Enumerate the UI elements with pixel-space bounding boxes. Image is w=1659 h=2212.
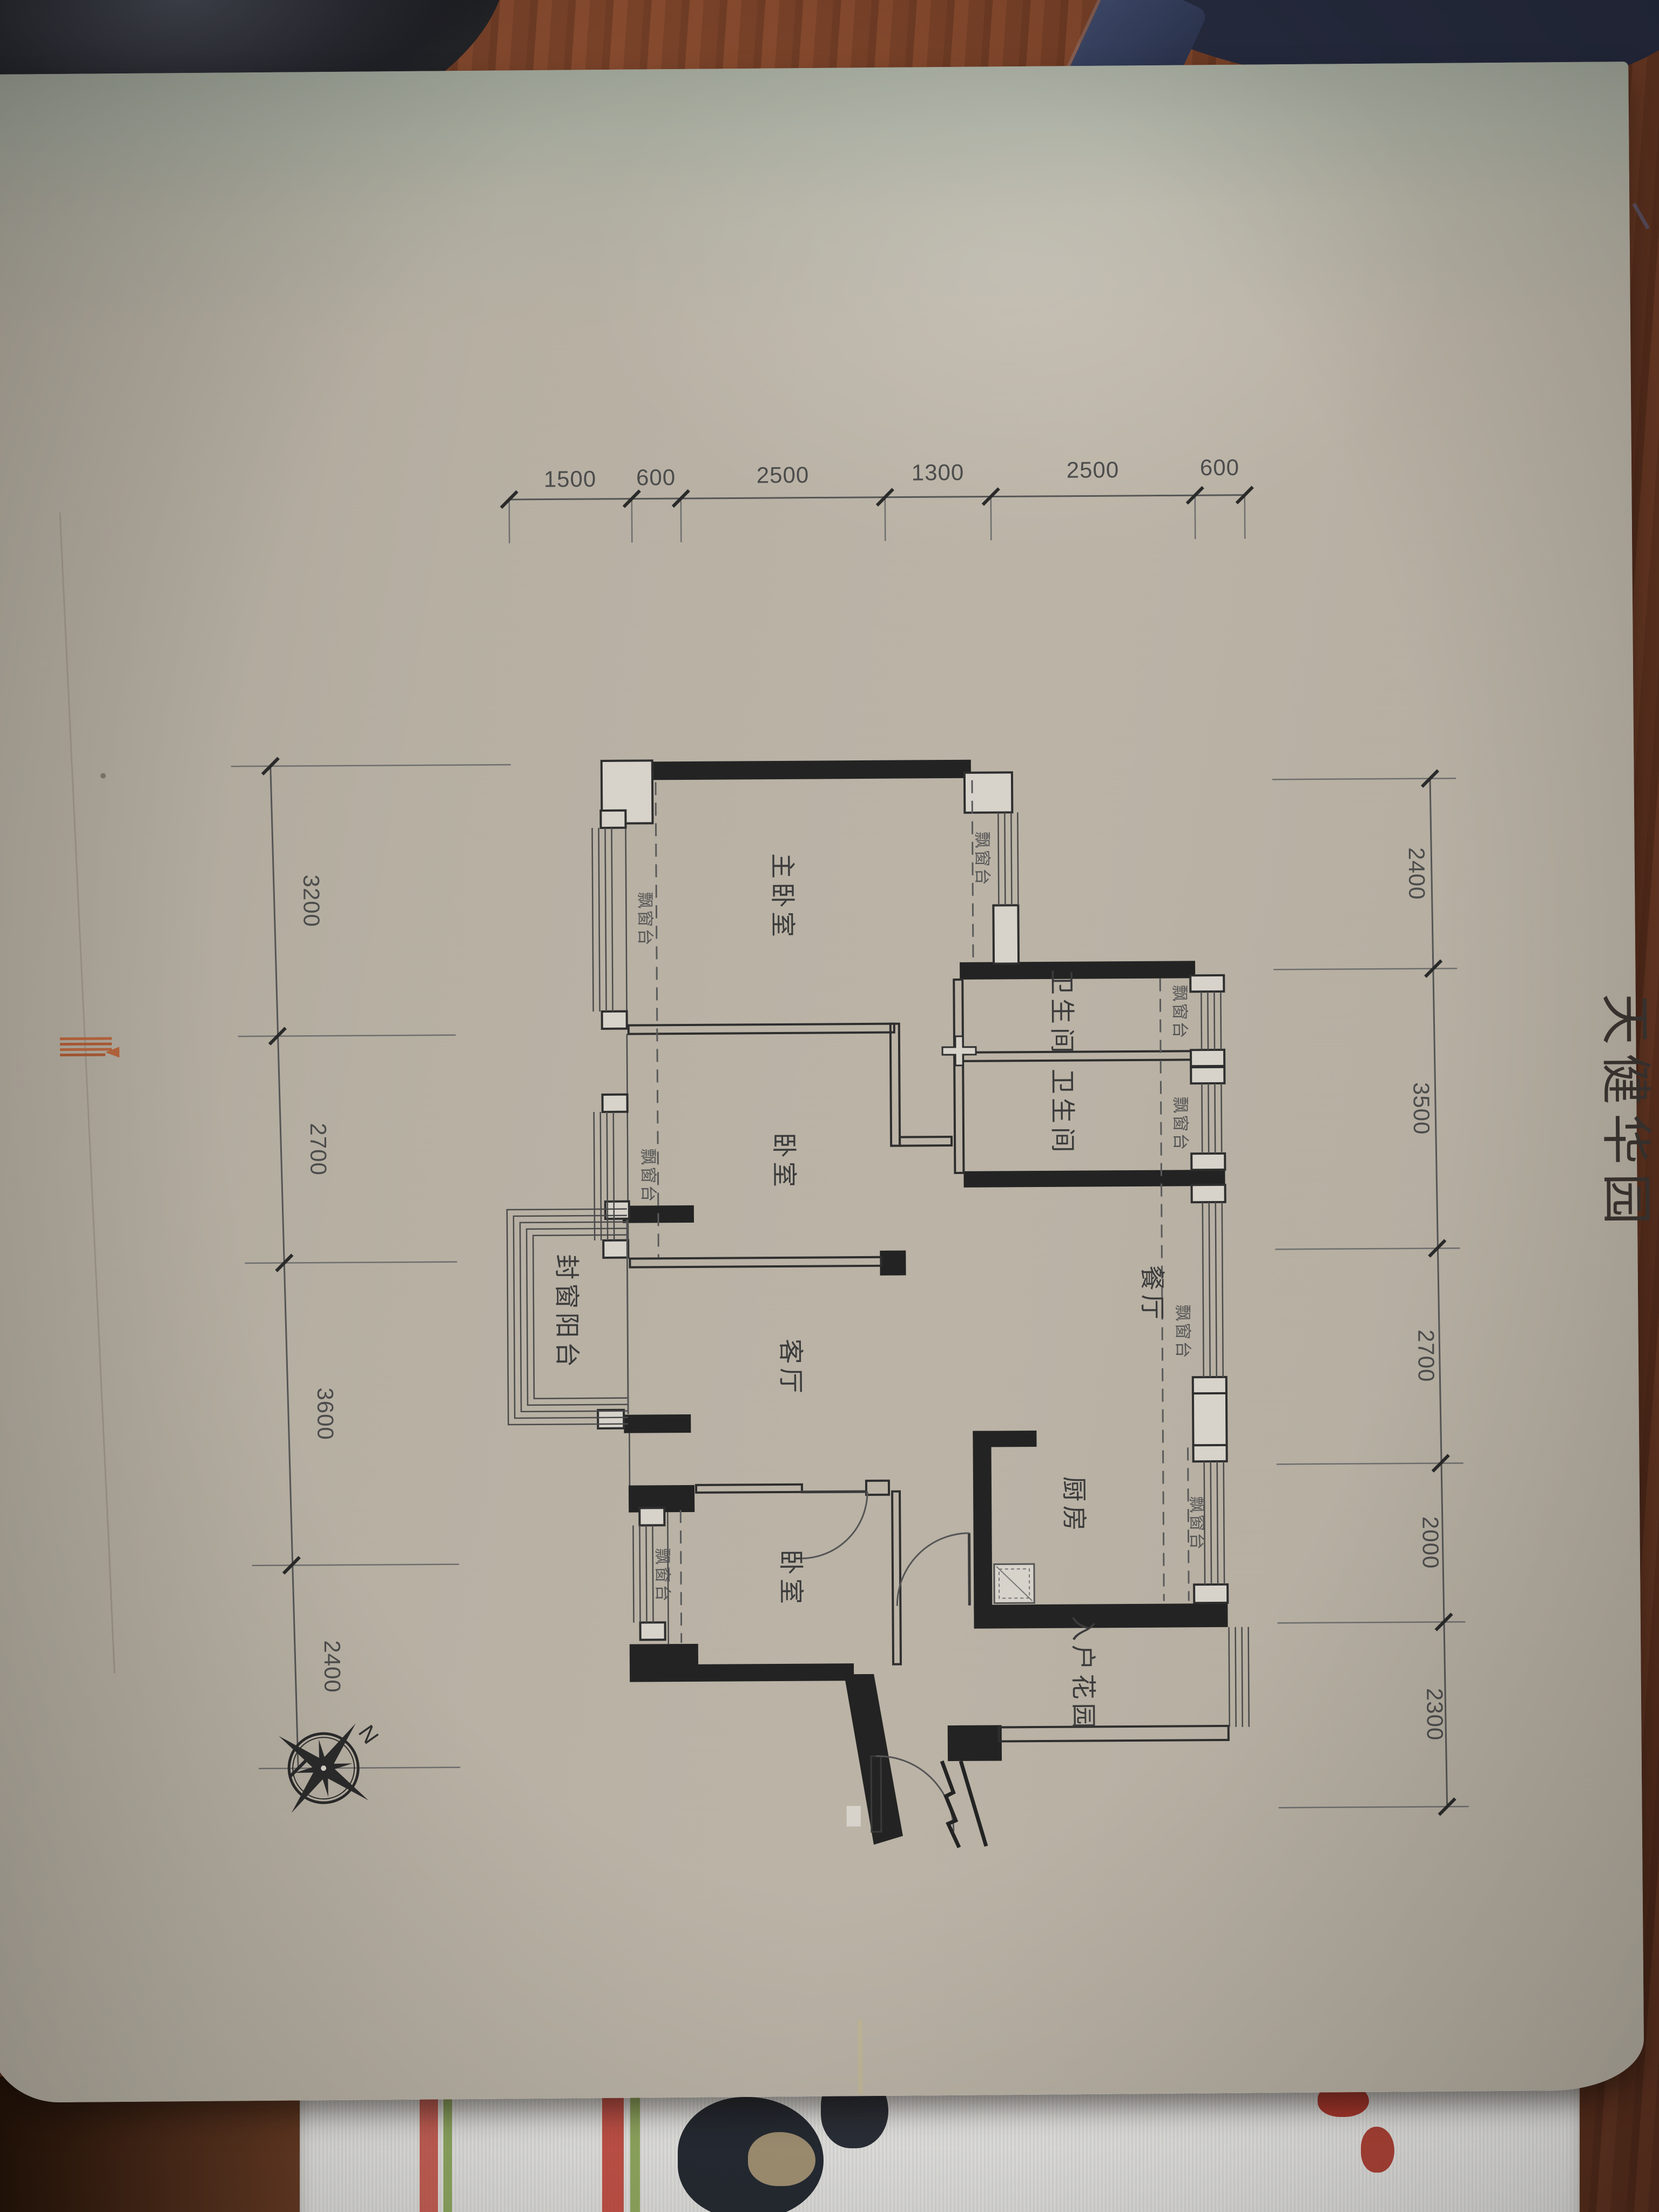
bay-label: 飘窗台: [973, 832, 992, 887]
entrance-jagged-wall: [942, 1761, 959, 1847]
bay-label: 飘窗台: [653, 1548, 672, 1603]
dim-left-2400: 2400: [320, 1640, 346, 1693]
bay-window-master-right: [998, 812, 1018, 905]
bay-window-labels: 飘窗台 飘窗台 飘窗台 飘窗台 飘窗台 飘窗台 飘窗台 飘窗台: [635, 830, 1207, 1603]
room-label-bedroom3: 卧室: [777, 1549, 806, 1608]
dim-right-2400: 2400: [1404, 847, 1430, 900]
railing-garden-right: [1229, 1627, 1249, 1727]
bay-window-bathroom1-right: [1201, 992, 1221, 1050]
dim-top-1300: 1300: [912, 460, 965, 485]
dim-top-2500: 2500: [757, 462, 810, 488]
kitchen-sink-icon: [994, 1564, 1034, 1603]
bay-window-bedroom2-left: [594, 1112, 614, 1240]
witness-lines-top: [509, 495, 1245, 543]
blue-pen-mark: [1634, 204, 1648, 228]
bay-label: 飘窗台: [639, 1148, 658, 1203]
bay-window-kitchen-right: [1204, 1461, 1224, 1584]
room-label-living: 客厅: [777, 1339, 806, 1397]
dim-left-3600: 3600: [313, 1387, 339, 1440]
room-label-master-bedroom: 主卧室: [768, 853, 797, 941]
room-label-entry-garden: 入户花园: [1069, 1615, 1098, 1732]
bay-label: 飘窗台: [1171, 1096, 1190, 1151]
entrance-outer-wall: [961, 1761, 986, 1846]
dim-right-2700: 2700: [1413, 1330, 1439, 1382]
room-label-dining: 餐厅: [1138, 1265, 1167, 1324]
bay-window-dining-right: [1203, 1202, 1223, 1377]
bay-label: 飘窗台: [1188, 1496, 1207, 1551]
dim-top-1500: 1500: [544, 466, 597, 492]
dimension-left: 3200 2700 3600 2400: [231, 757, 517, 1777]
door-kitchen: [897, 1533, 970, 1606]
dim-left-3200: 3200: [299, 874, 325, 927]
room-label-bedroom2: 卧室: [770, 1132, 799, 1191]
bay-label: 飘窗台: [1173, 1304, 1192, 1359]
dim-right-2000: 2000: [1418, 1516, 1444, 1569]
walls-thin: [625, 777, 1229, 1744]
room-label-balcony: 封窗阳台: [552, 1254, 582, 1371]
room-label-bathroom1: 卫生间: [1048, 969, 1077, 1057]
bay-window-bathroom2-right: [1202, 1083, 1222, 1154]
dimension-right: 2400 3500 2700 2000 2300: [1272, 770, 1469, 1816]
dimension-top: 1500 600 2500 1300 2500 600: [501, 455, 1253, 544]
compass-north-label: N: [354, 1721, 384, 1749]
bay-window-master-left: [592, 828, 613, 1011]
room-label-bathroom2: 卫生间: [1048, 1069, 1077, 1156]
dim-left-2700: 2700: [306, 1123, 332, 1176]
walls-solid: [620, 758, 1229, 1846]
stain-drip: [858, 2020, 863, 2094]
dim-top-2500: 2500: [1067, 457, 1120, 483]
dim-right-2300: 2300: [1422, 1688, 1448, 1741]
entrance-wall-notch: [847, 1806, 861, 1826]
bay-window-bedroom3-left: [633, 1525, 653, 1622]
paper-speck: [100, 773, 106, 779]
orange-sticker-mark: [60, 1037, 119, 1058]
photo-scene: 1500 600 2500 1300 2500 600: [0, 0, 1659, 2212]
dim-top-600: 600: [636, 464, 676, 490]
dashed-lines: [656, 779, 1189, 1643]
bay-label: 飘窗台: [1170, 984, 1190, 1040]
project-title: 天健华园: [1596, 993, 1655, 1233]
room-label-kitchen: 厨房: [1060, 1476, 1089, 1534]
dim-top-600: 600: [1200, 455, 1239, 480]
dim-right-3500: 3500: [1408, 1082, 1434, 1135]
bay-label: 飘窗台: [636, 892, 655, 947]
room-labels: 主卧室 卧室 卫生间 卫生间 餐厅 客厅 厨房 卧室 入户花园 封窗阳台: [550, 851, 1169, 1736]
door-bedroom3: [801, 1492, 868, 1559]
floor-plan-drawing: 1500 600 2500 1300 2500 600: [0, 0, 1659, 2212]
